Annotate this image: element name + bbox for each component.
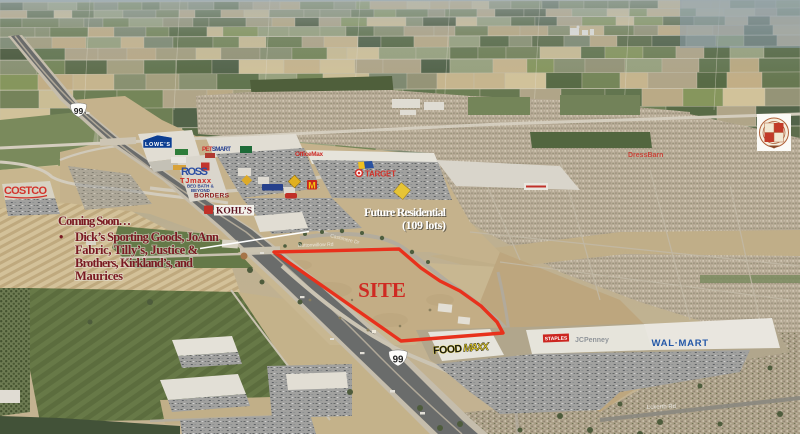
svg-text:Brothers, Kirkland’s, and: Brothers, Kirkland’s, and — [75, 256, 193, 270]
svg-text:BORDERS: BORDERS — [194, 193, 230, 200]
svg-text:PETSMART: PETSMART — [202, 146, 231, 153]
svg-text:DressBarn: DressBarn — [628, 152, 663, 159]
svg-text:99: 99 — [393, 355, 404, 366]
svg-text:Buttonwillow Rd: Buttonwillow Rd — [298, 242, 334, 249]
svg-text:Dick’s Sporting Goods, JoAnn: Dick’s Sporting Goods, JoAnn — [75, 230, 219, 244]
svg-text:OfficeMax: OfficeMax — [295, 151, 323, 158]
svg-text:(109 lots): (109 lots) — [402, 218, 446, 232]
svg-text:Future Residential: Future Residential — [364, 205, 447, 219]
svg-text:M: M — [308, 181, 316, 191]
svg-text:COSTCO: COSTCO — [4, 185, 47, 197]
svg-text:WAL·MART: WAL·MART — [652, 338, 709, 349]
svg-text:SITE: SITE — [358, 278, 406, 302]
svg-text:Lckerth Rd: Lckerth Rd — [647, 404, 676, 411]
svg-text:TARGET: TARGET — [365, 170, 396, 179]
svg-text:Maurices: Maurices — [75, 269, 123, 283]
svg-text:JCPenney: JCPenney — [575, 337, 609, 344]
svg-text:STAPLES: STAPLES — [545, 336, 569, 343]
svg-text:Fabric, Tilly’s, Justice &: Fabric, Tilly’s, Justice & — [75, 243, 198, 257]
svg-text:KOHL’S: KOHL’S — [216, 207, 252, 217]
svg-text:MAXX: MAXX — [463, 341, 490, 355]
svg-text:•: • — [59, 230, 63, 244]
svg-text:FOOD: FOOD — [433, 343, 463, 357]
svg-text:99: 99 — [74, 106, 84, 116]
svg-text:LOWE’S: LOWE’S — [145, 142, 170, 148]
svg-text:Coming Soon…: Coming Soon… — [58, 214, 131, 228]
